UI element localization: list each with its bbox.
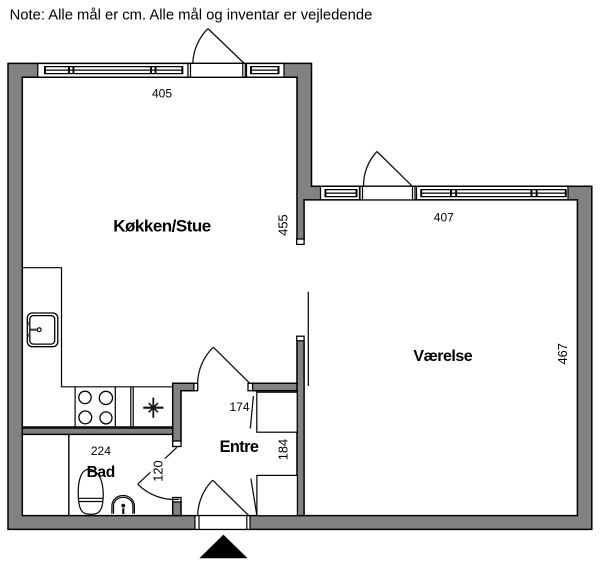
svg-text:120: 120 — [151, 460, 166, 481]
svg-text:Værelse: Værelse — [413, 348, 472, 365]
svg-text:174: 174 — [229, 400, 249, 414]
svg-text:Køkken/Stue: Køkken/Stue — [113, 217, 211, 236]
svg-text:407: 407 — [434, 211, 454, 225]
svg-text:224: 224 — [91, 444, 111, 458]
svg-text:Bad: Bad — [87, 464, 115, 481]
svg-text:Entre: Entre — [220, 438, 259, 456]
svg-text:455: 455 — [275, 214, 290, 235]
svg-text:Note: Alle mål er cm. Alle mål: Note: Alle mål er cm. Alle mål og invent… — [10, 7, 373, 23]
svg-text:405: 405 — [152, 87, 172, 101]
svg-text:184: 184 — [276, 439, 291, 460]
svg-text:467: 467 — [555, 343, 570, 364]
